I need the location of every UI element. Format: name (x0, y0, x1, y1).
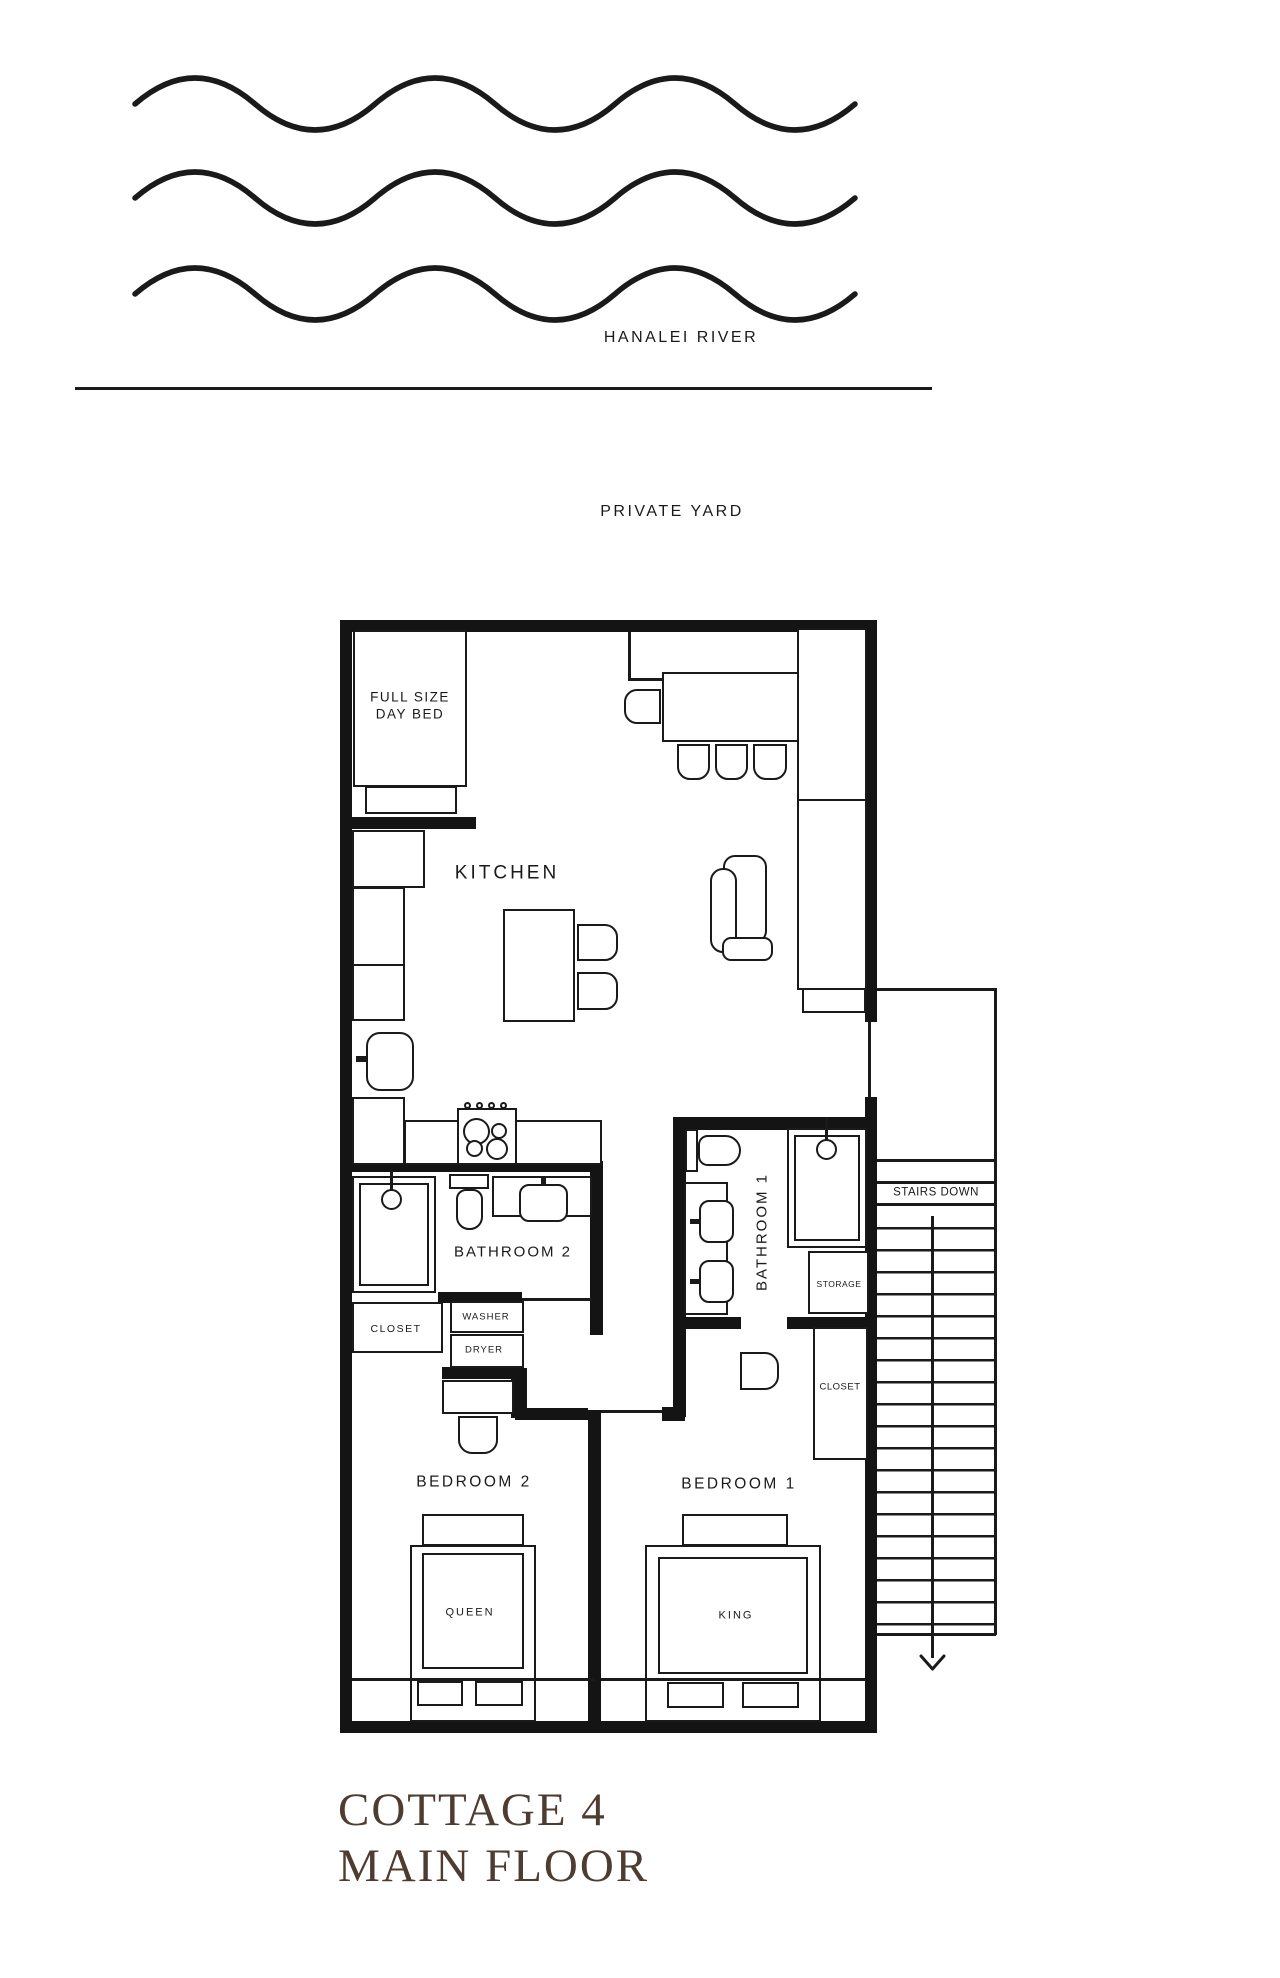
stairs-down-label: STAIRS DOWN (893, 1187, 979, 1199)
bathroom2-label: BATHROOM 2 (454, 1245, 572, 1260)
down-arrow-icon (918, 1652, 948, 1678)
chair-bedroom1 (740, 1352, 779, 1390)
vanity-bedroom2 (442, 1380, 514, 1414)
sink-bath1-bottom (699, 1260, 734, 1303)
stairs-landing-top-line (877, 988, 996, 991)
stair-treads (877, 1227, 996, 1636)
burner-large-2 (486, 1138, 508, 1160)
dining-nook-line-h (628, 678, 662, 681)
bar-stool-1 (577, 924, 618, 961)
king-pillow-right (742, 1682, 799, 1708)
floor-plan-page: HANALEI RIVER PRIVATE YARD FULL SIZE DAY… (0, 0, 1280, 1978)
queen-bed-label: QUEEN (445, 1608, 494, 1619)
counter-right-lower (797, 799, 867, 990)
bathroom1-label: BATHROOM 1 (755, 1173, 770, 1291)
yard-label: PRIVATE YARD (600, 504, 744, 520)
wall-left (340, 620, 352, 1733)
kitchen-label: KITCHEN (455, 864, 559, 883)
plan-title-line2: MAIN FLOOR (338, 1838, 649, 1894)
dining-chair-left (624, 689, 661, 724)
king-pillow-left (667, 1682, 724, 1708)
counter-left-2 (352, 964, 405, 1021)
day-bed-footboard (365, 786, 457, 814)
river-waves-icon (0, 0, 1280, 420)
storage-label: STORAGE (817, 1280, 862, 1289)
refrigerator (352, 830, 425, 888)
stairs-center-line (931, 1216, 934, 1658)
dining-chair-1 (677, 744, 710, 780)
stove-knob-2 (476, 1102, 483, 1109)
kitchen-island (503, 909, 575, 1022)
bedroom2-sill-line (352, 1678, 595, 1681)
sink-bath1-top (699, 1200, 734, 1243)
river-label: HANALEI RIVER (604, 330, 758, 346)
counter-right-end (802, 988, 866, 1013)
counter-left-1 (352, 887, 405, 966)
kitchen-sink (366, 1032, 414, 1091)
shower-head-icon-2 (816, 1139, 837, 1160)
plan-title: COTTAGE 4 MAIN FLOOR (338, 1782, 649, 1894)
bar-stool-2 (577, 972, 618, 1010)
stove-knob-3 (488, 1102, 495, 1109)
wall-bedroom-divider (588, 1410, 601, 1733)
closet-bedroom2-label: CLOSET (370, 1324, 421, 1335)
dining-table (662, 672, 802, 742)
day-bed-label-line1: FULL SIZE (370, 690, 450, 704)
toilet-bath2-bowl (456, 1189, 483, 1230)
queen-bed-headboard (422, 1514, 524, 1546)
stairs-line-3 (877, 1203, 996, 1206)
queen-pillow-right (475, 1681, 523, 1706)
door-opening-stairs (868, 1022, 871, 1097)
door-opening-bath2 (522, 1298, 592, 1301)
chair-bedroom2 (458, 1416, 498, 1454)
bedroom2-label: BEDROOM 2 (416, 1474, 532, 1490)
dryer-label: DRYER (465, 1345, 503, 1355)
day-bed-label-line2: DAY BED (376, 707, 445, 721)
wall-bottom (340, 1721, 877, 1733)
washer-label: WASHER (462, 1312, 509, 1322)
wall-bedroom2-entry (515, 1408, 588, 1420)
stove-knob-1 (464, 1102, 471, 1109)
stove-knob-4 (500, 1102, 507, 1109)
dining-chair-3 (753, 744, 787, 780)
toilet-bath1-tank (685, 1129, 698, 1172)
burner-small-1 (491, 1123, 507, 1139)
shower-bath1-stem (825, 1117, 828, 1141)
counter-left-return (352, 1097, 405, 1165)
wall-daybed-nook (340, 817, 476, 829)
dining-chair-2 (715, 744, 748, 780)
stairs-line-1 (877, 1159, 996, 1162)
bedroom1-sill-line (601, 1678, 866, 1681)
toilet-bath2-tank (449, 1174, 489, 1189)
counter-right-upper (797, 628, 867, 802)
burner-small-2 (466, 1140, 483, 1157)
closet-bedroom1-label: CLOSET (819, 1382, 860, 1392)
sofa-seat (722, 937, 773, 961)
sink-bath2 (519, 1184, 568, 1222)
plan-title-line1: COTTAGE 4 (338, 1782, 649, 1838)
shore-line (75, 387, 932, 390)
closet-bedroom1-box (813, 1327, 868, 1460)
stairs-line-2 (877, 1181, 996, 1184)
stairs-bottom-line (877, 1633, 996, 1636)
queen-pillow-left (417, 1681, 463, 1706)
wall-bath1-bottom-left (685, 1317, 741, 1329)
shower-head-icon (381, 1189, 402, 1210)
toilet-bath1-bowl (698, 1135, 741, 1166)
bedroom1-label: BEDROOM 1 (681, 1476, 797, 1492)
king-bed-headboard (682, 1514, 788, 1546)
dining-nook-line-v (628, 632, 631, 680)
king-bed-label: KING (719, 1611, 754, 1622)
